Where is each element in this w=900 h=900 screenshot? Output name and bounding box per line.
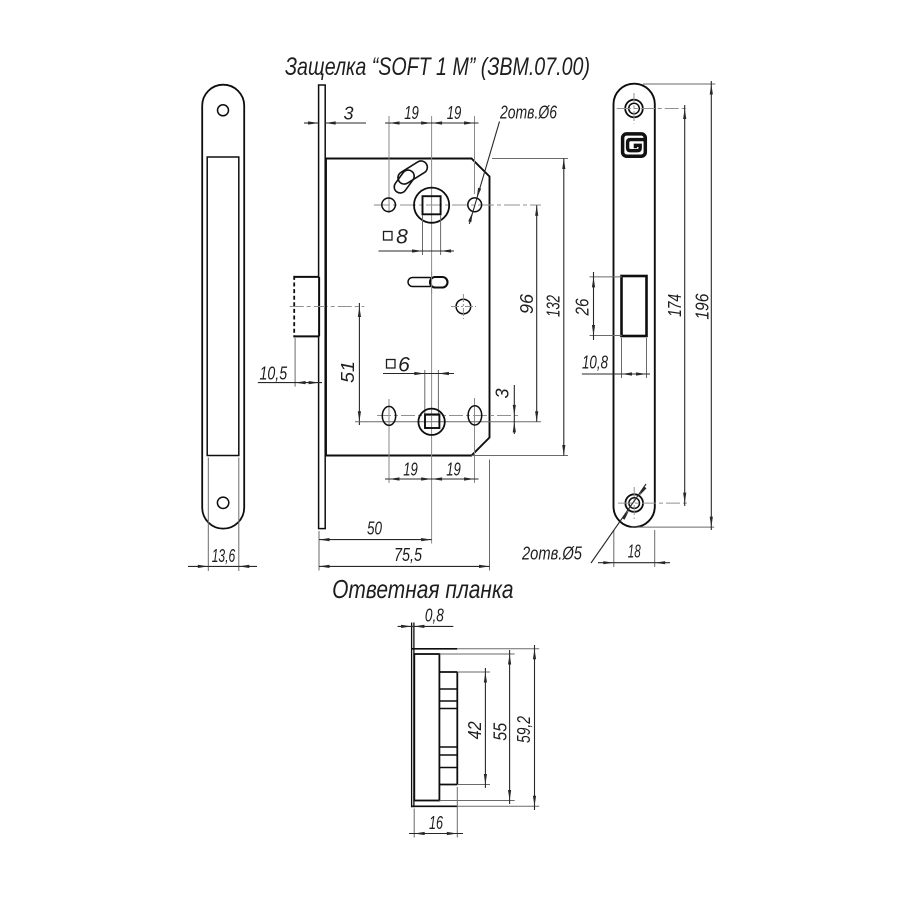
- svg-text:19: 19: [446, 460, 461, 480]
- svg-text:26: 26: [573, 298, 593, 317]
- svg-text:2отв.Ø6: 2отв.Ø6: [499, 103, 558, 123]
- svg-text:16: 16: [429, 813, 444, 833]
- svg-text:10,8: 10,8: [582, 353, 608, 373]
- svg-text:50: 50: [367, 519, 382, 539]
- svg-text:0,8: 0,8: [425, 606, 444, 626]
- svg-text:55: 55: [491, 722, 511, 741]
- svg-text:6: 6: [398, 354, 410, 377]
- svg-text:19: 19: [447, 103, 462, 123]
- svg-text:19: 19: [404, 103, 419, 123]
- svg-text:18: 18: [628, 542, 641, 562]
- svg-text:96: 96: [517, 293, 537, 314]
- svg-text:19: 19: [403, 460, 418, 480]
- svg-text:75,5: 75,5: [394, 545, 423, 565]
- svg-text:Защелка “SOFT 1 M” (ЗВМ.07.00): Защелка “SOFT 1 M” (ЗВМ.07.00): [285, 53, 590, 81]
- svg-text:10,5: 10,5: [260, 364, 288, 384]
- svg-text:196: 196: [693, 293, 713, 320]
- svg-text:3: 3: [493, 388, 513, 398]
- svg-text:13,6: 13,6: [212, 546, 236, 566]
- svg-text:3: 3: [343, 104, 353, 124]
- svg-text:42: 42: [465, 721, 485, 739]
- svg-text:59,2: 59,2: [514, 716, 534, 743]
- svg-text:132: 132: [544, 295, 564, 317]
- svg-text:8: 8: [396, 226, 408, 249]
- svg-text:51: 51: [338, 361, 358, 383]
- svg-text:174: 174: [665, 294, 685, 317]
- svg-text:Ответная планка: Ответная планка: [332, 574, 513, 604]
- svg-text:2отв.Ø5: 2отв.Ø5: [521, 544, 583, 564]
